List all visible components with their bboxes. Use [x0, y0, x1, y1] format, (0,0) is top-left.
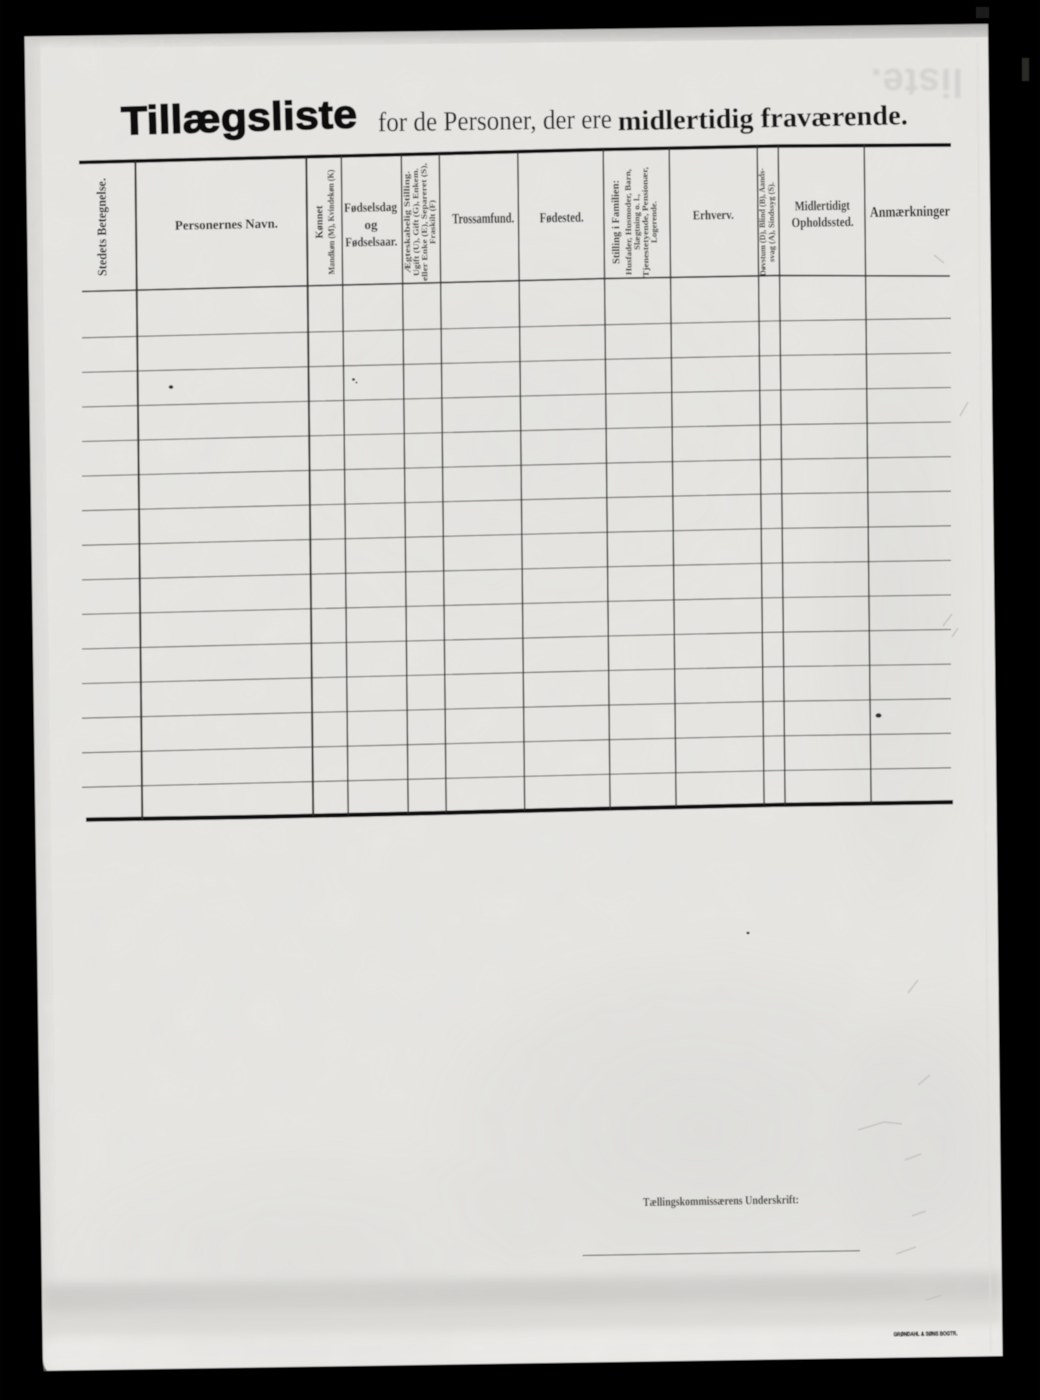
svg-text:Trossamfund.: Trossamfund. [452, 210, 514, 227]
svg-text:Fødselsaar.: Fødselsaar. [345, 233, 397, 249]
svg-text:Logerende.: Logerende. [649, 201, 658, 243]
svg-text:Fraskilt (F): Fraskilt (F) [428, 200, 437, 244]
svg-text:Tillægsliste: Tillægsliste [120, 93, 357, 144]
svg-text:Mandkøn (M), Kvindekøn (K): Mandkøn (M), Kvindekøn (K) [325, 169, 336, 274]
svg-text:Stedets Betegnelse.: Stedets Betegnelse. [93, 178, 109, 276]
svg-text:Tællingskommissærens Underskr: Tællingskommissærens Underskrift: [643, 1192, 799, 1209]
svg-text:Midlertidigt: Midlertidigt [795, 198, 851, 214]
svg-text:og: og [364, 217, 378, 232]
svg-text:midlertidig fraværende.: midlertidig fraværende. [617, 100, 908, 137]
svg-text:Anmærkninger: Anmærkninger [870, 204, 951, 221]
svg-text:for de Personer, der ere: for de Personer, der ere [378, 103, 612, 137]
svg-text:Stilling i Familien:: Stilling i Familien: [611, 180, 623, 264]
svg-text:Fødselsdag: Fødselsdag [344, 199, 398, 215]
svg-text:Fødested.: Fødested. [540, 211, 584, 227]
svg-text:Erhverv.: Erhverv. [693, 207, 734, 223]
svg-text:svag (A), Sindssyg (S).: svag (A), Sindssyg (S). [767, 182, 777, 262]
svg-text:Opholdssted.: Opholdssted. [791, 214, 853, 230]
svg-text:liste.: liste. [870, 60, 963, 104]
svg-text:GRØNDAHL & SØNS BOGTR.: GRØNDAHL & SØNS BOGTR. [893, 1331, 957, 1338]
svg-text:Kønnet: Kønnet [314, 205, 325, 239]
svg-text:Personernes Navn.: Personernes Navn. [175, 216, 278, 233]
